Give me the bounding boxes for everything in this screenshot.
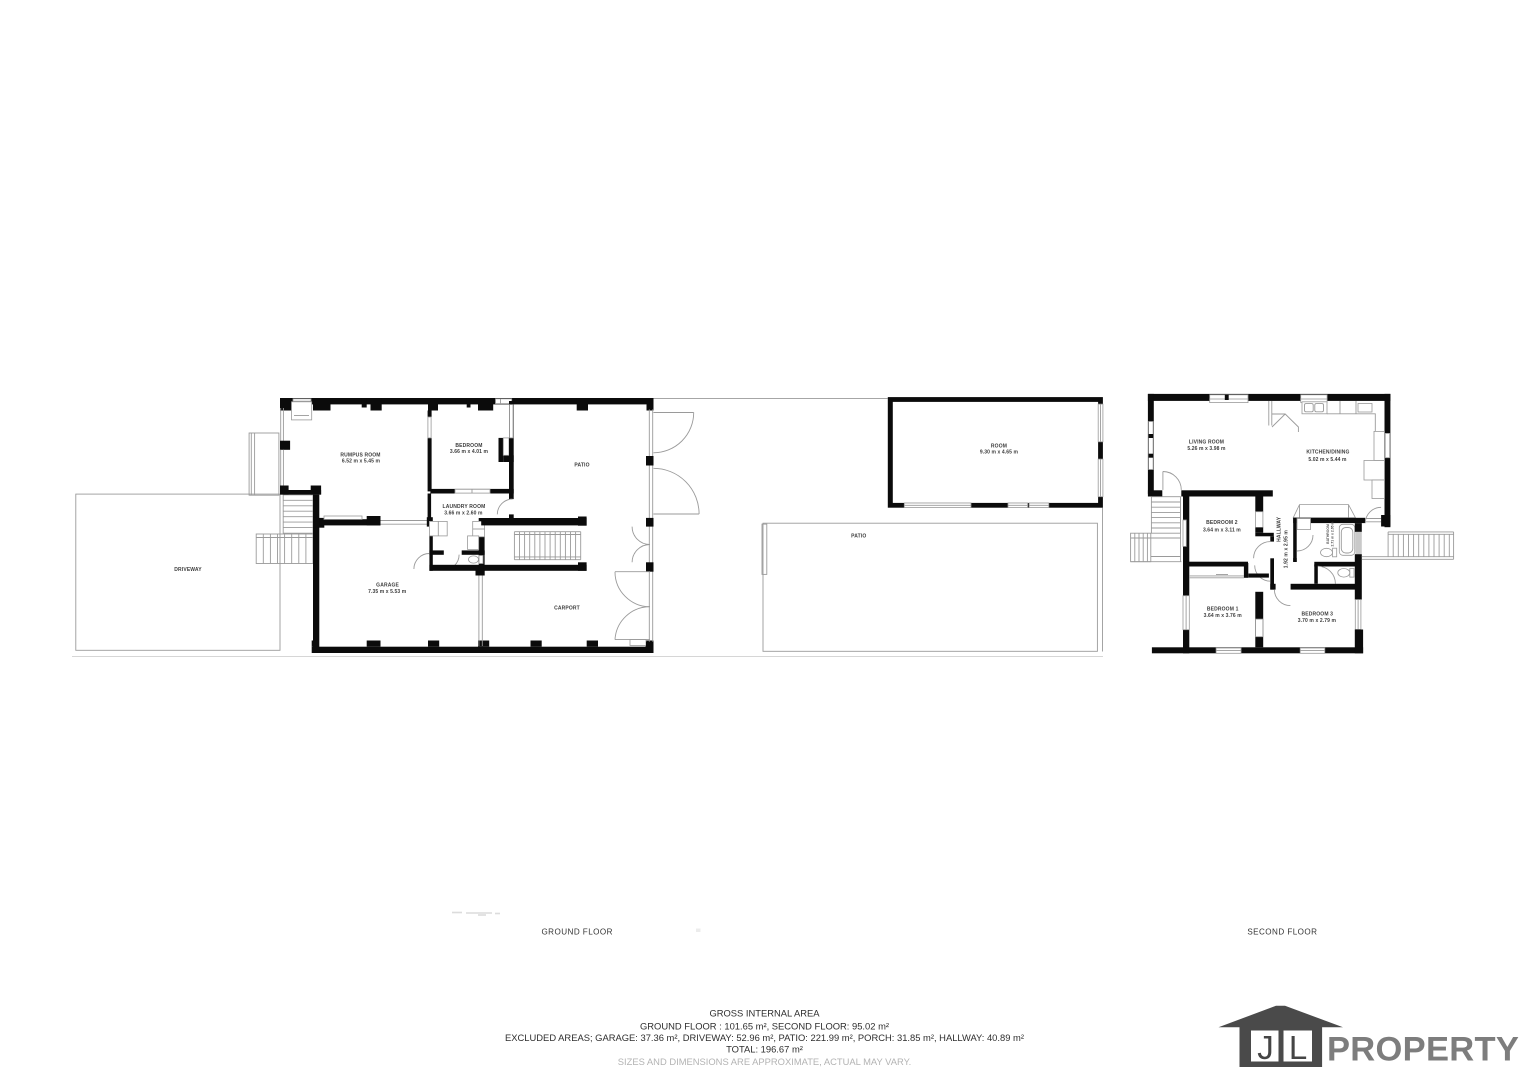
svg-text:SECOND FLOOR: SECOND FLOOR (1247, 927, 1317, 936)
svg-text:L: L (1289, 1029, 1307, 1066)
svg-text:2.71 m x 2.65 m: 2.71 m x 2.65 m (1330, 522, 1334, 547)
svg-text:DRIVEWAY: DRIVEWAY (174, 567, 202, 573)
svg-text:HALLWAY: HALLWAY (1277, 516, 1283, 542)
svg-text:J: J (1257, 1029, 1274, 1066)
svg-text:LIVING ROOM: LIVING ROOM (1189, 440, 1224, 446)
svg-text:EXCLUDED AREAS; GARAGE: 37.36: EXCLUDED AREAS; GARAGE: 37.36 m², DRIVEW… (505, 1032, 1024, 1043)
svg-text:GARAGE: GARAGE (376, 582, 399, 588)
svg-text:TOTAL: 196.67 m²: TOTAL: 196.67 m² (726, 1044, 803, 1055)
svg-text:GROUND FLOOR: GROUND FLOOR (541, 927, 613, 936)
svg-text:BEDROOM 1: BEDROOM 1 (1207, 607, 1239, 613)
svg-text:3.64 m x 3.11 m: 3.64 m x 3.11 m (1203, 527, 1241, 533)
svg-text:3.64 m x 3.76 m: 3.64 m x 3.76 m (1204, 613, 1243, 619)
svg-text:KITCHEN/DINING: KITCHEN/DINING (1306, 450, 1349, 456)
svg-text:3.66 m x 4.01 m: 3.66 m x 4.01 m (450, 449, 489, 455)
svg-text:SIZES AND DIMENSIONS ARE APPRO: SIZES AND DIMENSIONS ARE APPROXIMATE, AC… (618, 1056, 911, 1067)
svg-text:7.35 m x 5.53 m: 7.35 m x 5.53 m (368, 589, 407, 595)
svg-text:9.30 m x 4.65 m: 9.30 m x 4.65 m (980, 449, 1019, 455)
svg-text:6.52 m x 5.45 m: 6.52 m x 5.45 m (342, 459, 381, 465)
svg-text:BEDROOM 3: BEDROOM 3 (1301, 612, 1333, 618)
svg-text:CARPORT: CARPORT (554, 606, 580, 612)
svg-text:3.70 m x 2.79 m: 3.70 m x 2.79 m (1298, 618, 1337, 624)
svg-text:BEDROOM 2: BEDROOM 2 (1206, 520, 1238, 526)
svg-text:PATIO: PATIO (851, 533, 866, 539)
svg-text:LAUNDRY ROOM: LAUNDRY ROOM (443, 504, 486, 510)
svg-text:BATHROOM: BATHROOM (1326, 524, 1330, 544)
svg-text:GROSS INTERNAL AREA: GROSS INTERNAL AREA (709, 1008, 820, 1019)
svg-text:GROUND FLOOR : 101.65 m², SECO: GROUND FLOOR : 101.65 m², SECOND FLOOR: … (640, 1020, 889, 1031)
svg-text:1.92 m x 2.95 m: 1.92 m x 2.95 m (1284, 530, 1290, 569)
svg-text:PATIO: PATIO (574, 462, 589, 468)
svg-text:ROOM: ROOM (991, 443, 1007, 449)
svg-text:5.26 m x 3.98 m: 5.26 m x 3.98 m (1187, 446, 1226, 452)
svg-text:3.66 m x 2.60 m: 3.66 m x 2.60 m (444, 510, 483, 516)
svg-text:5.02 m x 5.44 m: 5.02 m x 5.44 m (1308, 457, 1347, 463)
svg-text:PROPERTY: PROPERTY (1327, 1031, 1519, 1069)
